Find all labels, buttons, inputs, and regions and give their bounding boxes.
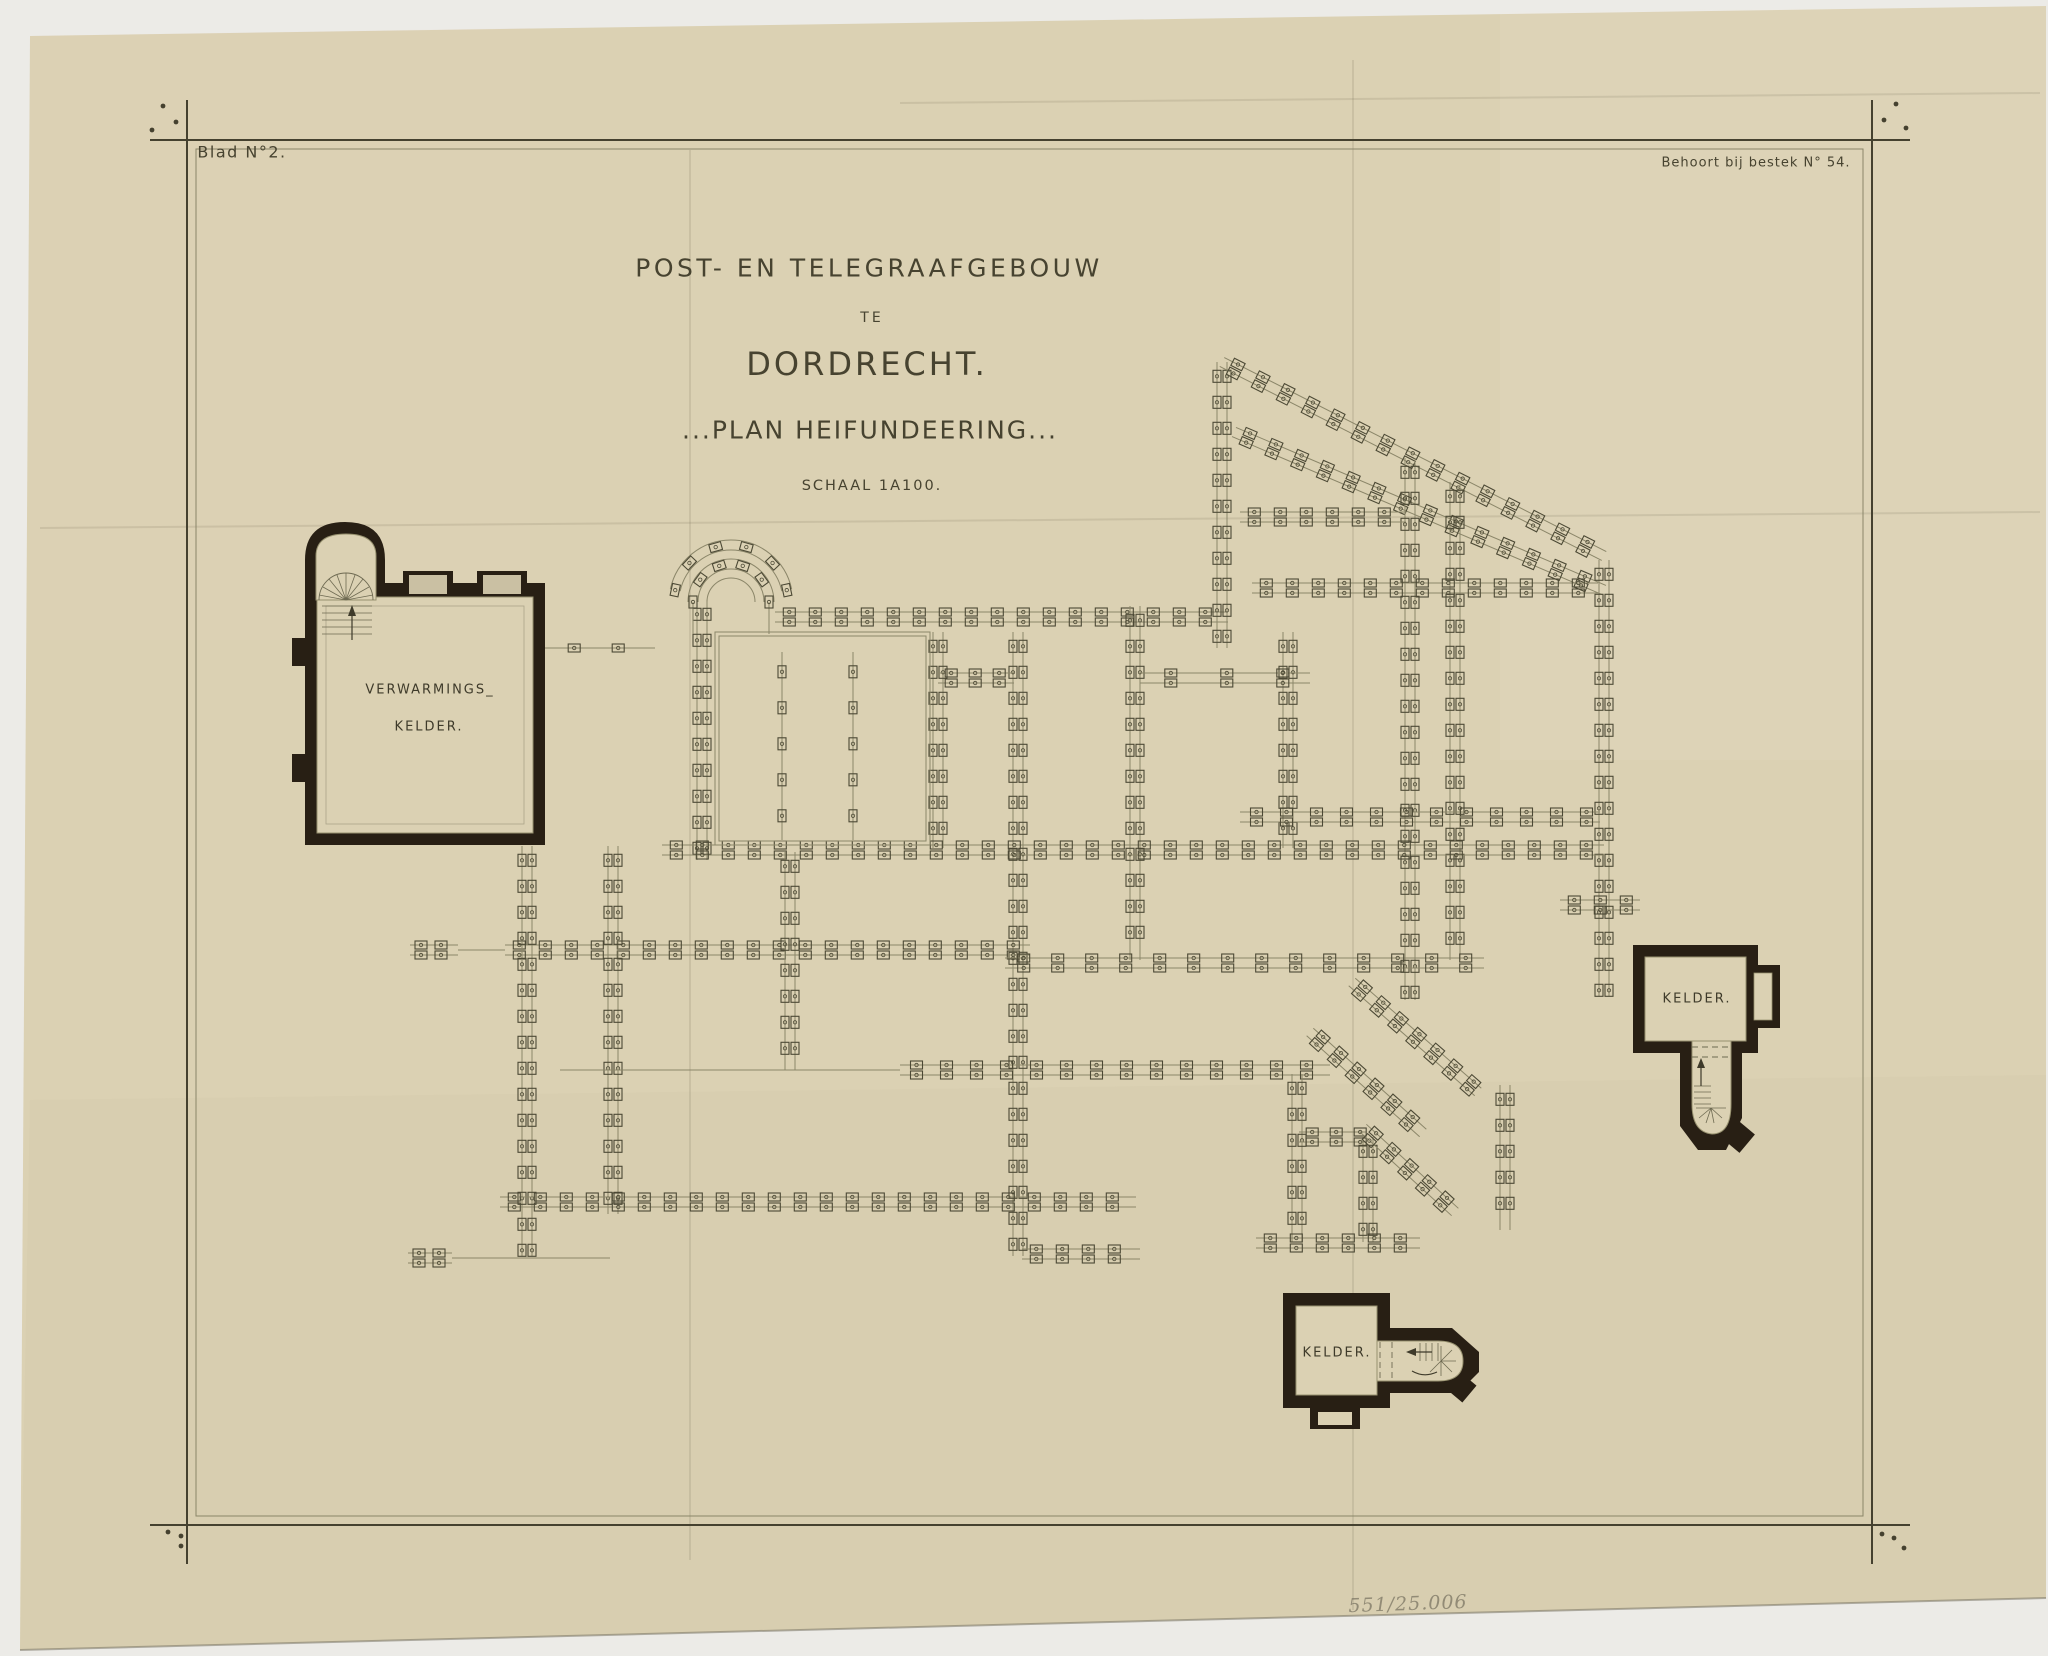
wall-notch	[409, 575, 447, 594]
sheet-number-label: Blad N°2.	[197, 143, 286, 162]
scanned-drawing-sheet: Blad N°2. Behoort bij bestek N° 54. POST…	[0, 0, 2048, 1656]
stair-corridor-interior	[1692, 1041, 1731, 1134]
title-line-te: TE	[860, 310, 883, 326]
title-line-scale: SCHAAL 1A100.	[802, 478, 943, 494]
niche-interior	[1754, 973, 1772, 1020]
title-line-plan: ...PLAN HEIFUNDEERING...	[682, 416, 1058, 445]
paper-tone-lower	[20, 1075, 2046, 1650]
protrusion-interior	[1318, 1412, 1352, 1425]
verwarmingskelder-label-line2: KELDER.	[395, 720, 464, 735]
drawing-canvas	[0, 0, 2048, 1656]
title-line-city: DORDRECHT.	[746, 345, 987, 383]
wall-buttress	[292, 754, 305, 782]
kelder-bottom-label: KELDER.	[1303, 1346, 1372, 1361]
paper-tone-pink	[30, 28, 530, 640]
wall-buttress	[292, 638, 305, 666]
kelder-right-label: KELDER.	[1663, 992, 1732, 1007]
verwarmingskelder-label-line1: VERWARMINGS_	[365, 683, 494, 698]
cellar-interior	[317, 597, 533, 833]
paper-tone-right	[1500, 6, 2046, 760]
wall-notch	[483, 575, 521, 594]
title-line-building: POST- EN TELEGRAAFGEBOUW	[635, 254, 1102, 283]
pencil-inventory-note: 551/25.006	[1348, 1591, 1468, 1617]
spec-reference-label: Behoort bij bestek N° 54.	[1661, 156, 1850, 171]
